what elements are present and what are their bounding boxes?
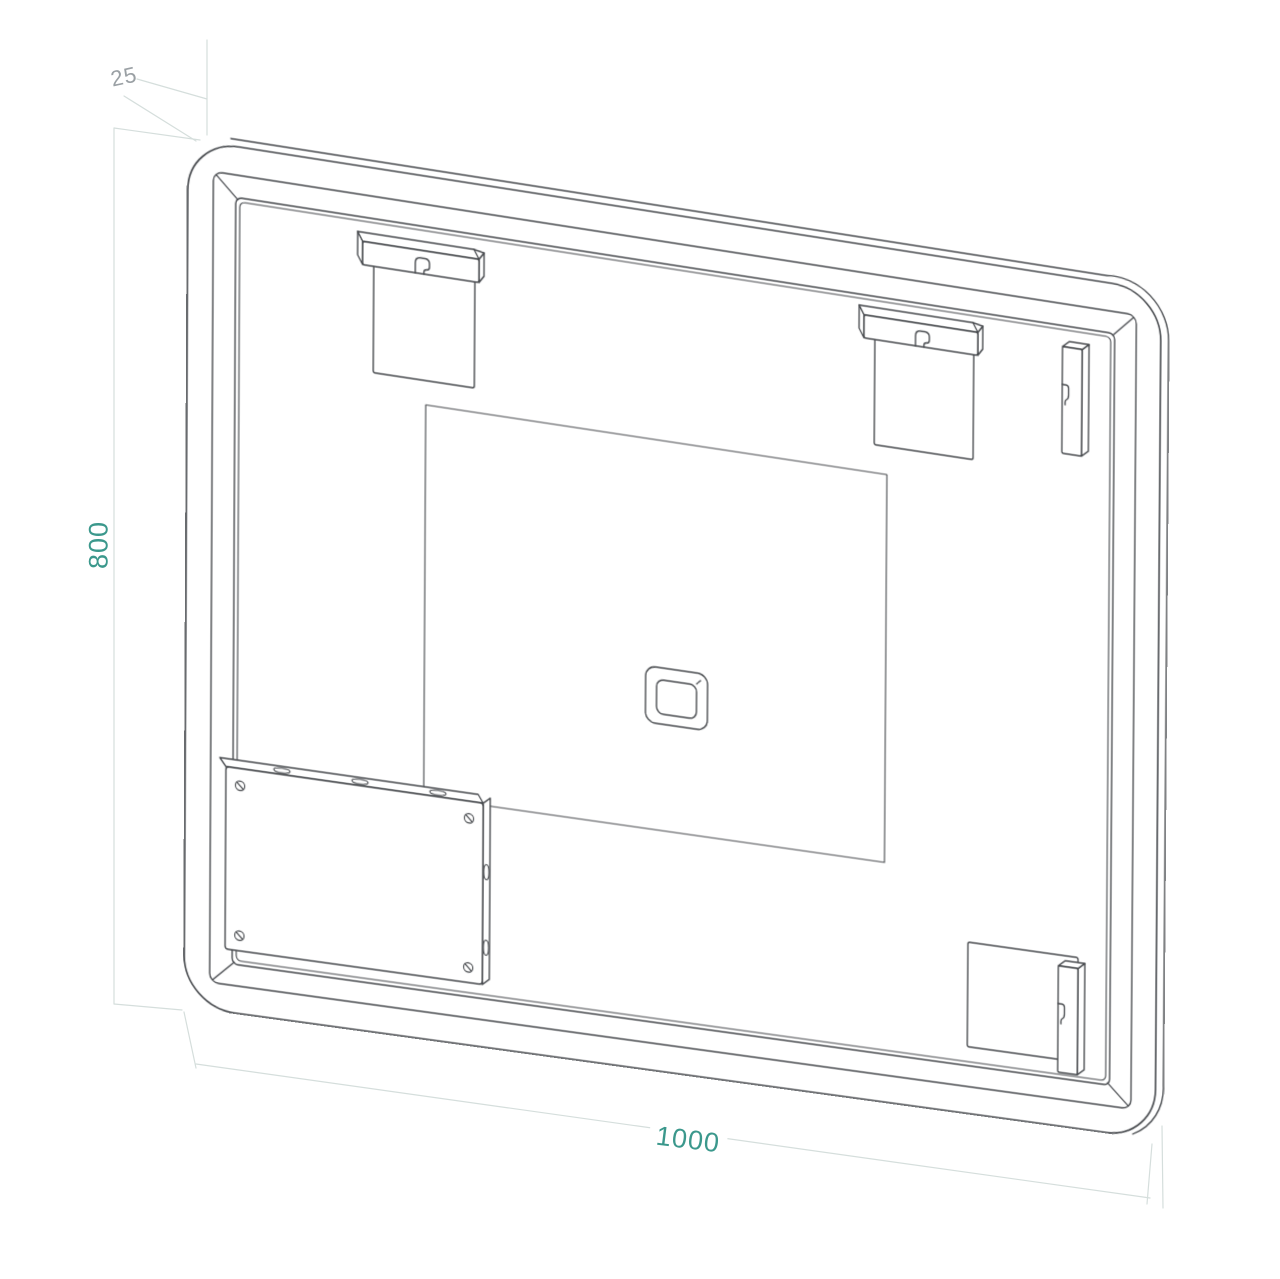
dimension-height-label: 800 (84, 521, 115, 569)
mirror-back-svg (184, 139, 1161, 1139)
driver-box (219, 758, 490, 986)
mounting-bracket-top-right (858, 305, 982, 461)
width-extension-line-left (184, 1012, 196, 1068)
right-edge-extension-line (1162, 1126, 1163, 1208)
side-rail-bottom-right (1058, 960, 1085, 1076)
dimension-width-label: 1000 (647, 1119, 729, 1161)
drawing-canvas: 25 800 1000 (0, 0, 1280, 1279)
width-extension-line-right (1147, 1144, 1152, 1204)
mirror-back-view (184, 139, 1161, 1139)
junction-box-opening (656, 679, 696, 719)
depth-dimension-line (137, 79, 207, 99)
height-extension-line-bottom (114, 1004, 182, 1010)
junction-box (645, 666, 707, 731)
driver-box-front-face (225, 767, 483, 985)
side-rail-top-right (1062, 341, 1089, 458)
mounting-bracket-top-left (357, 231, 484, 389)
dimension-depth-label: 25 (108, 62, 139, 93)
depth-extension-line (124, 96, 196, 141)
